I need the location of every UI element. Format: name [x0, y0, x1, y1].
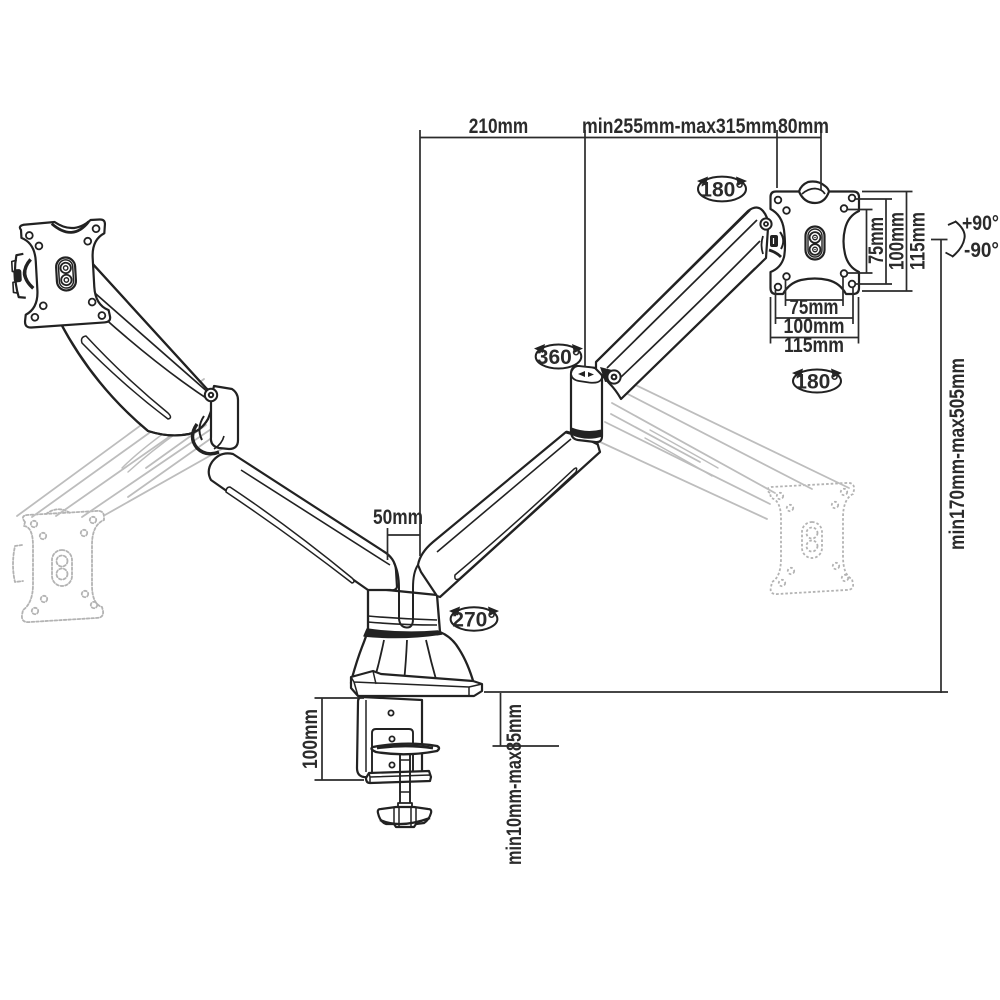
svg-text:80mm: 80mm [778, 115, 829, 138]
svg-text:min255mm-max315mm: min255mm-max315mm [582, 115, 777, 138]
svg-text:-90°: -90° [964, 239, 999, 262]
svg-text:180°: 180° [700, 179, 743, 202]
svg-text:50mm: 50mm [373, 506, 423, 529]
svg-text:100mm: 100mm [886, 212, 909, 270]
svg-text:360°: 360° [537, 346, 580, 369]
svg-text:270°: 270° [452, 609, 495, 632]
svg-text:min170mm-max505mm: min170mm-max505mm [946, 358, 969, 550]
svg-text:115mm: 115mm [907, 212, 930, 270]
svg-text:100mm: 100mm [299, 709, 322, 769]
svg-text:115mm: 115mm [784, 334, 844, 357]
svg-text:210mm: 210mm [469, 115, 529, 138]
svg-text:+90°: +90° [962, 212, 999, 235]
svg-text:180°: 180° [795, 371, 838, 394]
svg-text:min10mm-max85mm: min10mm-max85mm [503, 704, 526, 865]
